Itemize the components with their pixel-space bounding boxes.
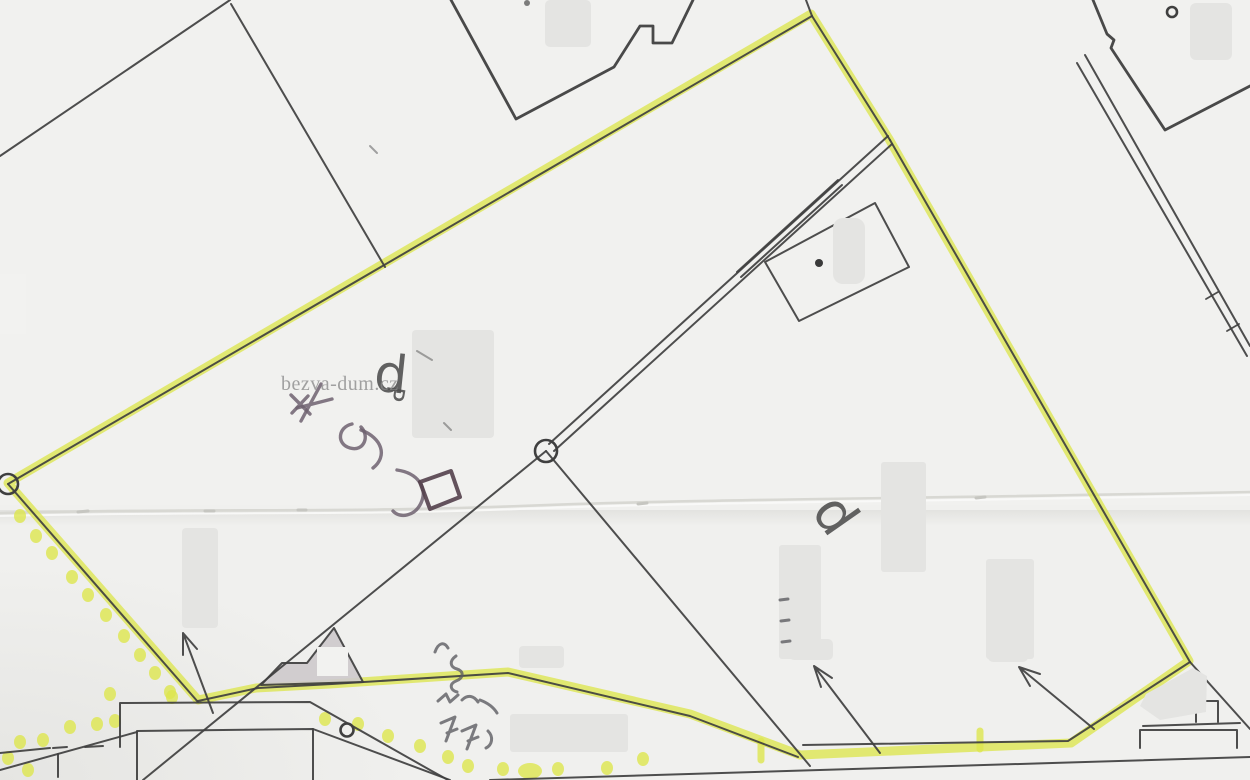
highlight-dot	[149, 666, 161, 680]
highlight-dot	[30, 529, 42, 543]
highlight-dot	[64, 720, 76, 734]
highlight-dot	[82, 588, 94, 602]
highlight-dot	[104, 687, 116, 701]
highlight-dot	[518, 763, 542, 779]
highlight-dot	[442, 750, 454, 764]
redaction-box	[519, 646, 564, 668]
highlight-dot	[37, 733, 49, 747]
highlight-dot	[382, 729, 394, 743]
highlight-dot	[46, 546, 58, 560]
redaction-box	[1190, 3, 1232, 60]
redaction-box	[881, 462, 926, 572]
highlight-dot	[14, 735, 26, 749]
highlight-dot	[100, 608, 112, 622]
redaction-box	[510, 714, 628, 752]
cadastral-map-canvas: d P d	[0, 0, 1250, 780]
highlight-dot	[319, 712, 331, 726]
watermark-text: bezva-dum.cz	[281, 373, 399, 395]
highlight-dot	[134, 648, 146, 662]
highlight-dot	[118, 629, 130, 643]
highlight-dot	[14, 509, 26, 523]
highlight-dot	[91, 717, 103, 731]
redaction-box	[988, 642, 1028, 662]
highlight-dot	[66, 570, 78, 584]
stray-ink-dot	[524, 0, 530, 6]
highlight-dot	[637, 752, 649, 766]
highlight-dot	[414, 739, 426, 753]
highlight-dot	[552, 762, 564, 776]
redaction-box	[0, 274, 26, 334]
highlight-dot	[601, 761, 613, 775]
crease-shadow-band	[0, 510, 1250, 526]
redaction-box	[833, 218, 865, 284]
paper-upper-sheen	[0, 0, 1250, 505]
highlight-dot	[22, 763, 34, 777]
redaction-box	[412, 330, 494, 438]
highlight-dot	[497, 762, 509, 776]
redaction-box	[317, 647, 348, 676]
paper-texture	[0, 0, 1250, 780]
redaction-box	[182, 528, 218, 628]
redaction-box	[789, 639, 833, 660]
watermark: bezva-dum.cz	[281, 373, 399, 395]
redaction-box	[545, 0, 591, 47]
highlight-dot	[462, 759, 474, 773]
building-point-dot	[815, 259, 823, 267]
scanned-map-page: d P d	[0, 0, 1250, 780]
